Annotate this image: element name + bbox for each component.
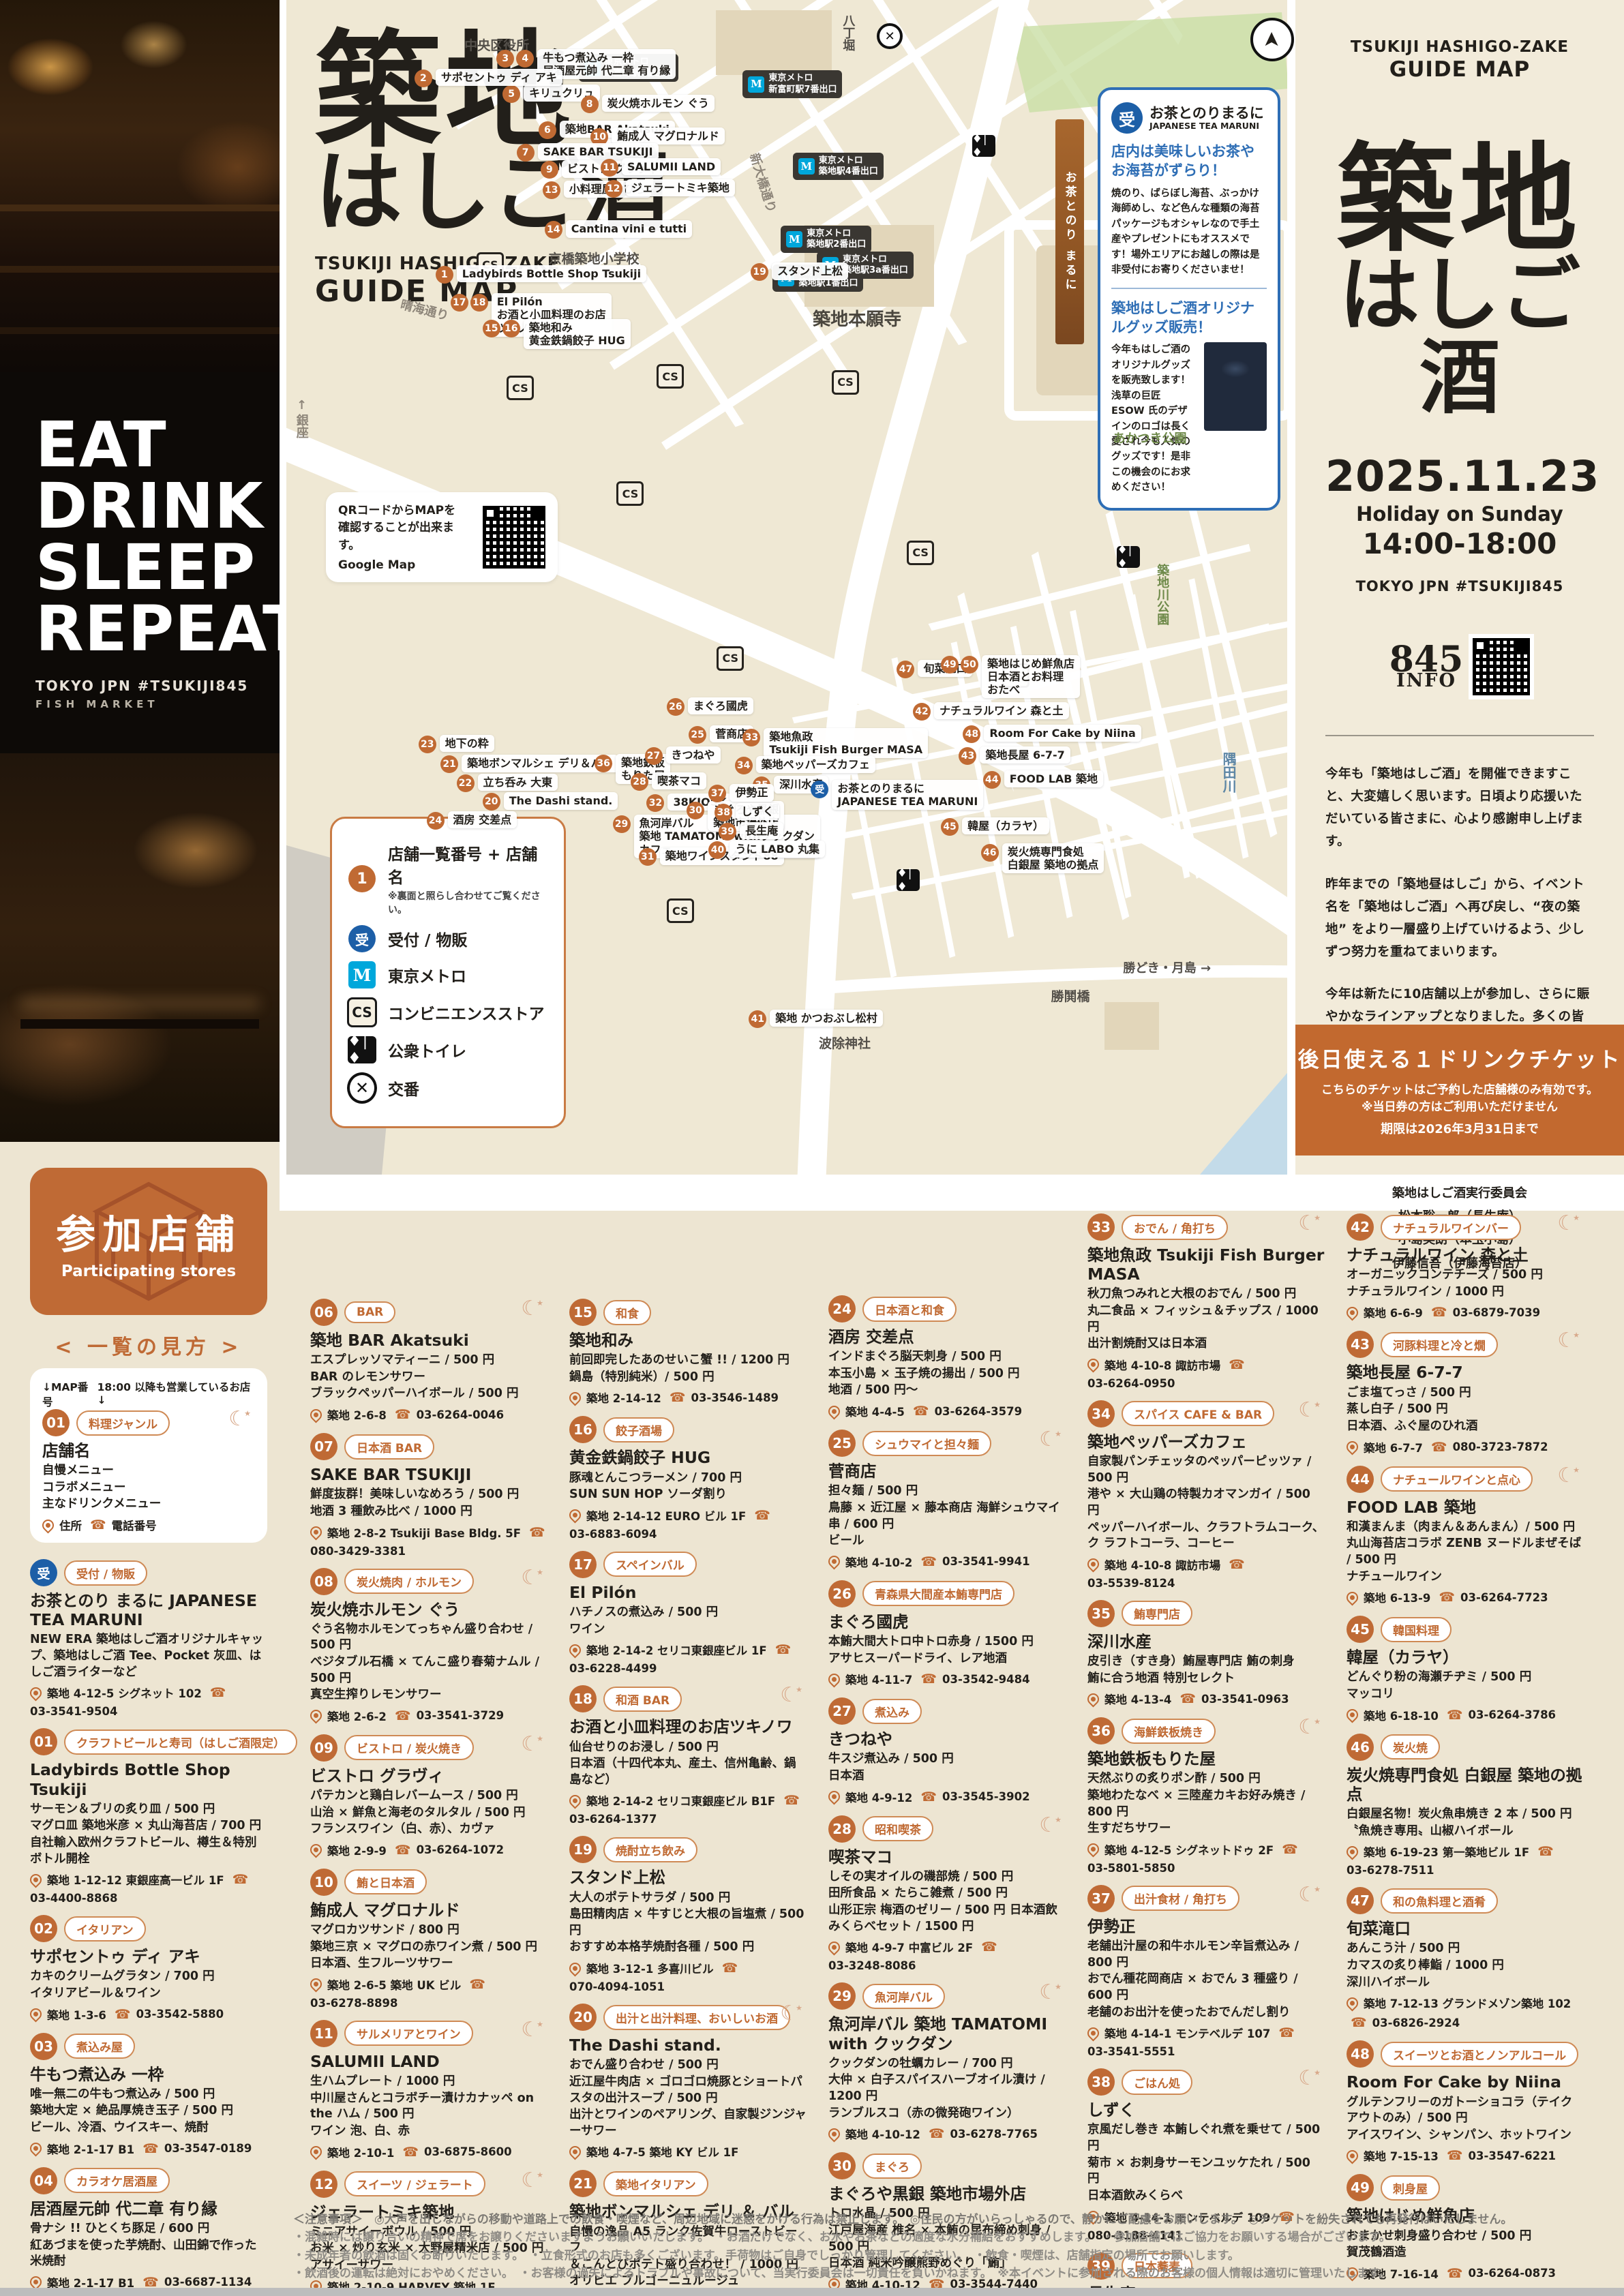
slogan-hashtag: TOKYO JPN #TSUKIJI845	[35, 678, 280, 694]
shop-name: 鮪成人 マグロナルド	[310, 1901, 547, 1920]
convenience-store-icon: CS	[616, 481, 644, 506]
map-shop-label[interactable]: 38しずく	[715, 803, 779, 821]
map-shop-name: 韓屋（カラヤ）	[962, 817, 1049, 834]
map-marker[interactable]: 1	[436, 266, 453, 284]
map-marker[interactable]: 39	[719, 823, 736, 841]
shop-menu-lines: どんぐり粉の海瀬チヂミ / 500 円マッコリ	[1347, 1670, 1584, 1702]
open-late-moon-icon: ☾★	[521, 1734, 546, 1755]
map-marker[interactable]: 2	[415, 70, 432, 87]
phone-icon: ☎	[913, 1404, 929, 1419]
shop-address: 築地 6-13-9	[1364, 1589, 1430, 1605]
open-late-moon-icon: ☾★	[521, 2020, 546, 2040]
map-marker[interactable]: 24	[427, 812, 445, 830]
phone-icon: ☎	[402, 2145, 419, 2160]
map-marker[interactable]: 41	[749, 1010, 766, 1028]
shop-entry: 26 青森県大間産本鮪専門店 ☾★ まぐろ國虎 本鮪大間大トロ中トロ赤身 / 1…	[828, 1580, 1066, 1687]
ticket-line1: こちらのチケットはご予約した店舗様のみ有効です。	[1295, 1080, 1624, 1097]
phone-icon: ☎	[115, 2007, 131, 2022]
shop-name: 韓屋（カラヤ）	[1347, 1648, 1584, 1667]
right-event-logo: 築地 はしご酒	[1325, 143, 1594, 419]
shop-number-badge: 44	[1347, 1466, 1374, 1493]
map-shop-label[interactable]: 33築地魚政Tsukiji Fish Burger MASA	[742, 728, 928, 758]
shop-category: サルメリアとワイン	[344, 2021, 473, 2046]
shop-entry: 10 鮪と日本酒 ☾★ 鮪成人 マグロナルド マグロカツサンド / 800 円築…	[310, 1869, 547, 2010]
map-shop-label[interactable]: 19スタンド上松	[751, 262, 848, 281]
participating-stores-header: 参加店舗 Participating stores	[30, 1168, 267, 1315]
map-marker[interactable]: 27	[645, 747, 663, 765]
map-marker[interactable]: 47	[897, 661, 914, 678]
legend-row: 1店舗一覧番号 + 店舗名※裏面と照らし合わせてご覧ください。	[347, 841, 549, 916]
address-pin-icon	[826, 1789, 842, 1805]
map-shop-label[interactable]: 44FOOD LAB 築地	[983, 770, 1103, 789]
shop-number-badge: 30	[828, 2152, 856, 2179]
sample-phone: 電話番号	[112, 1517, 157, 1533]
shop-name: 酒房 交差点	[828, 1327, 1066, 1346]
map-marker[interactable]: 42	[913, 703, 931, 721]
map-shop-label[interactable]: 4950築地はじめ鮮魚店日本酒とお料理おたべ	[941, 655, 1080, 699]
slogan-line: REPEAT	[35, 599, 280, 660]
map-qr-card: QRコードからMAPを 確認することが出来ます。 Google Map	[326, 492, 558, 582]
phone-icon: ☎	[210, 1685, 226, 1700]
map-marker[interactable]: 43	[959, 747, 976, 765]
map-shop-label[interactable]: 34築地ペッパーズカフェ	[735, 756, 875, 774]
shop-name: お酒と小皿料理のお店ツキノワ	[569, 1717, 807, 1736]
address-pin-icon	[826, 1939, 842, 1955]
phone-icon: ☎	[395, 1843, 411, 1858]
map-shop-label[interactable]: 14Cantina vini e tutti	[545, 220, 692, 239]
map-marker[interactable]: 31	[639, 848, 657, 866]
map-shop-label[interactable]: 40うに LABO 丸集	[708, 841, 825, 859]
map-marker[interactable]: 30	[687, 802, 704, 819]
info-heading-tea: 店内は美味しいお茶やお海苔がずらり！	[1111, 142, 1267, 181]
shop-name: お茶とのり まるに JAPANESE TEA MARUNI	[30, 1591, 267, 1629]
convenience-store-icon: CS	[657, 364, 684, 389]
shop-name: まぐろ國虎	[828, 1612, 1066, 1631]
legend-label: コンビニエンスストア	[388, 1001, 545, 1024]
shop-phone: 03-6264-0046	[417, 1408, 505, 1421]
shop-name: El Pilón	[569, 1583, 807, 1602]
map-shop-label[interactable]: 22立ち呑み 大東	[457, 774, 558, 792]
phone-icon: ☎	[1229, 1557, 1245, 1572]
map-shop-label[interactable]: 21築地ボンマルシェ デリ＆バル	[440, 755, 618, 773]
shop-menu-lines: しその実オイルの磯部焼 / 500 円田所食品 × たらこ雑煮 / 500 円山…	[828, 1869, 1066, 1935]
shop-address: 築地 7-12-13 グランドメゾン築地 102	[1364, 1995, 1571, 2011]
shop-address: 築地 4-9-7 中富ビル 2F	[845, 1939, 973, 1955]
tokyo-metro-icon: M	[786, 231, 802, 247]
shop-number-badge: 12	[310, 2171, 337, 2198]
shop-address: 築地 6-7-7	[1364, 1439, 1423, 1455]
shop-number-badge: 10	[310, 1869, 337, 1896]
shop-category: 餃子酒場	[603, 1417, 674, 1442]
shop-name: ナチュラルワイン 森と土	[1347, 1245, 1584, 1265]
map-marker[interactable]: 28	[631, 773, 648, 791]
map-shop-label[interactable]: 41築地 かつおぶし松村	[749, 1010, 883, 1028]
map-marker[interactable]: 22	[457, 774, 475, 792]
shop-address: 築地 2-8-2 Tsukiji Base Bldg. 5F	[327, 1524, 521, 1541]
map-shop-label[interactable]: 39長生庵	[719, 822, 783, 841]
shop-phone: 03-3541-9504	[30, 1705, 118, 1718]
map-shop-label[interactable]: 43築地長屋 6-7-7	[959, 746, 1070, 765]
shop-category: 出汁食材 / 角打ち	[1122, 1886, 1239, 1911]
map-shop-label[interactable]: 42ナチュラルワイン 森と土	[913, 702, 1069, 721]
shop-category: クラフトビールと寿司（はしご酒限定）	[64, 1729, 297, 1755]
metro-station-label: M東京メトロ築地駅2番出口	[781, 226, 871, 254]
shop-category: 煮込み	[862, 1699, 922, 1724]
info-body-goods: 今年もはしご酒のオリジナルグッズを販売致します！浅草の巨匠 ESOW 氏のデザイ…	[1111, 342, 1197, 496]
goods-photo	[1204, 342, 1267, 431]
map-marker[interactable]: 49	[941, 656, 959, 674]
map-marker[interactable]: 37	[708, 785, 726, 802]
address-pin-icon	[27, 2141, 44, 2157]
map-marker[interactable]: 6	[539, 121, 556, 139]
map-shop-label[interactable]: 1Ladybirds Bottle Shop Tsukiji	[436, 265, 646, 284]
convenience-store-icon: CS	[347, 997, 377, 1027]
phone-icon: ☎	[1351, 2015, 1367, 2030]
shop-phone: 070-4094-1051	[569, 1980, 665, 1993]
map-shop-label[interactable]: 20The Dashi stand.	[483, 792, 618, 811]
map-shop-name: Ladybirds Bottle Shop Tsukiji	[457, 265, 646, 282]
shop-address: 築地 4-7-5 築地 KY ビル 1F	[586, 2143, 738, 2160]
shop-entry: 36 海鮮鉄板焼き ☾★ 築地鉄板もりた屋 天然ぶりの炙りポン酢 / 500 円…	[1087, 1717, 1325, 1875]
shop-name: きつねや	[828, 1729, 1066, 1749]
shop-entry: 11 サルメリアとワイン ☾★ SALUMII LAND 生ハムプレート / 1…	[310, 2020, 547, 2160]
map-shop-label[interactable]: 12ジェラートミキ築地	[605, 179, 735, 198]
map-shop-name: 伊勢正	[730, 784, 773, 801]
shop-category: イタリアン	[64, 1916, 146, 1942]
map-shop-name: ナチュラルワイン 森と土	[934, 702, 1069, 719]
map-marker[interactable]: 12	[605, 180, 622, 198]
shop-menu-lines: 大人のポテトサラダ / 500 円島田精肉店 × 牛すじと大根の旨塩煮 / 50…	[569, 1890, 807, 1957]
google-map-qr-code[interactable]	[483, 506, 545, 569]
shop-category: 韓国料理	[1381, 1617, 1452, 1642]
shop-phone: 03-3541-0963	[1201, 1693, 1289, 1706]
photo-izakaya-counter	[0, 753, 280, 1142]
sample-category: 料理ジャンル	[76, 1410, 170, 1436]
map-marker[interactable]: 5	[502, 85, 520, 103]
participating-stores-title: 参加店舗	[56, 1203, 241, 1260]
info-qr-code[interactable]	[1473, 638, 1530, 695]
map-marker[interactable]: 45	[941, 818, 959, 836]
legend-row: CSコンビニエンスストア	[347, 997, 549, 1027]
map-marker[interactable]: 36	[595, 755, 612, 772]
shop-entry: 34 スパイス CAFE & BAR ☾★ 築地ペッパーズカフェ 自家製パンチェ…	[1087, 1400, 1325, 1590]
shop-menu-lines: NEW ERA 築地はしご酒オリジナルキャップ、築地はしご酒 Tee、Pocke…	[30, 1632, 267, 1680]
reception-name: お茶とのりまるに	[1149, 105, 1264, 121]
open-late-moon-icon: ☾★	[521, 1299, 546, 1319]
map-marker[interactable]: 29	[613, 815, 631, 833]
shop-number-badge: 06	[310, 1299, 337, 1326]
map-shop-label[interactable]: 23地下の粋	[419, 735, 494, 753]
map-marker[interactable]: 38	[715, 804, 732, 821]
legend-label: 受付 / 物販	[388, 927, 467, 950]
map-marker[interactable]: 19	[751, 263, 768, 281]
shop-number-badge: 21	[569, 2170, 597, 2197]
shop-category: カラオケ居酒屋	[64, 2168, 170, 2193]
shop-phone: 03-6687-1134	[164, 2276, 252, 2289]
directory-column-4: 24 日本酒と和食 ☾★ 酒房 交差点 インドまぐろ脳天刺身 / 500 円本玉…	[828, 1295, 1066, 2296]
shop-name: 築地 BAR Akatsuki	[310, 1331, 547, 1350]
map-marker[interactable]: 4	[516, 50, 534, 67]
address-pin-icon	[307, 1976, 324, 1993]
map-marker[interactable]: 46	[981, 844, 999, 862]
shop-phone: 03-3541-9941	[942, 1555, 1030, 1568]
shop-phone: 03-3541-5551	[1087, 2045, 1175, 2058]
shop-category: スイーツ / ジェラート	[344, 2171, 485, 2196]
address-pin-icon	[27, 1685, 44, 1701]
shop-name: Room For Cake by Niina	[1347, 2072, 1584, 2091]
shop-menu-lines: 老舗出汁屋の和牛ホルモン辛旨煮込み / 800 円おでん種花岡商店 × おでん …	[1087, 1939, 1325, 2021]
shop-category: 築地イタリアン	[603, 2171, 708, 2196]
map-marker[interactable]: 20	[483, 793, 500, 811]
shop-entry: 17 スペインバル ☾★ El Pilón ハチノスの煮込み / 500 円ワイ…	[569, 1551, 807, 1675]
shop-number-badge: 42	[1347, 1213, 1374, 1241]
shop-phone: 03-6883-6094	[569, 1528, 657, 1541]
map-marker[interactable]: 40	[708, 841, 726, 859]
shop-menu-lines: 豚魂とんこつラーメン / 700 円SUN SUN HOP ソーダ割り	[569, 1470, 807, 1503]
shop-address: 築地 2-1-17 B1	[47, 2141, 134, 2157]
address-pin-icon	[1085, 1841, 1101, 1858]
address-pin-icon	[567, 1792, 583, 1809]
map-shop-label[interactable]: 8炭火焼ホルモン ぐう	[581, 95, 715, 113]
map-marker[interactable]: 13	[543, 181, 560, 199]
address-pin-icon	[307, 1406, 324, 1423]
map-shop-label[interactable]: 27きつねや	[645, 746, 721, 765]
map-shop-name: きつねや	[666, 746, 721, 764]
map-marker[interactable]: 21	[440, 755, 458, 773]
shop-menu-lines: マグロカツサンド / 800 円築地三京 × マグロの赤ワイン煮 / 500 円…	[310, 1922, 547, 1972]
metro-station-label: M東京メトロ築地駅4番出口	[793, 153, 884, 181]
map-marker[interactable]: 18	[470, 294, 488, 312]
map-marker[interactable]: 8	[581, 95, 599, 113]
address-pin-icon	[826, 1671, 842, 1687]
shop-number-badge: 29	[828, 1982, 856, 2010]
map-marker[interactable]: 受	[811, 781, 828, 798]
map-shop-label[interactable]: 受お茶とのりまるにJAPANESE TEA MARUNI	[811, 780, 983, 810]
open-late-moon-icon: ☾★	[1039, 1982, 1064, 2003]
phone-icon: ☎	[1179, 1691, 1196, 1706]
map-shop-name: 築地長屋 6-7-7	[980, 746, 1070, 764]
legend-sub: ※裏面と照らし合わせてご覧ください。	[388, 889, 549, 916]
shop-entry: 03 煮込み屋 ☾★ 牛もつ煮込み 一枠 唯一無二の牛もつ煮込み / 500 円…	[30, 2033, 267, 2157]
map-landmark-label: あかつき公園	[1113, 429, 1187, 447]
shop-phone: 03-3545-3902	[942, 1790, 1030, 1803]
shop-menu-lines: 京風だし巻き 本鮪しぐれ煮を乗せて / 500 円菊市 × お刺身サーモンユッケ…	[1087, 2122, 1325, 2204]
shop-number-badge: 11	[310, 2020, 337, 2047]
shop-address: 築地 4-10-8 諏訪市場	[1104, 1357, 1220, 1373]
shop-menu-lines: 鮮度抜群！美味しいなめろう / 500 円地酒 3 種飲み比べ / 1000 円	[310, 1487, 547, 1520]
map-shop-label[interactable]: 24酒房 交差点	[427, 811, 517, 830]
open-late-moon-icon: ☾★	[1557, 1213, 1582, 1234]
shop-category: 魚河岸バル	[862, 1984, 945, 2009]
map-marker[interactable]: 50	[961, 656, 978, 674]
map-shop-label[interactable]: 11SALUMII LAND	[601, 158, 721, 177]
map-shop-name: 築地 かつおぶし松村	[770, 1010, 883, 1027]
participating-stores-subtitle: Participating stores	[61, 1263, 236, 1280]
shop-category: 刺身屋	[1381, 2175, 1440, 2201]
map-shop-name: スタンド上松	[772, 262, 848, 280]
shop-menu-lines: おでん盛り合わせ / 500 円近江屋牛肉店 × ゴロゴロ焼豚とショートパスタの…	[569, 2057, 807, 2139]
map-shop-name: 立ち呑み 大東	[478, 774, 558, 791]
map-shop-label[interactable]: 46炭火焼専門食処白銀屋 築地の拠点	[981, 843, 1104, 873]
map-marker[interactable]: 3	[496, 50, 514, 67]
shop-menu-lines: インドまぐろ脳天刺身 / 500 円本玉小島 × 玉子焼の揚出 / 500 円地…	[828, 1349, 1066, 1399]
photo-bar-interior	[0, 0, 280, 372]
open-late-moon-icon: ☾★	[1298, 1400, 1323, 1421]
map-marker[interactable]: 11	[601, 159, 618, 177]
map-marker[interactable]: 33	[742, 729, 760, 746]
open-late-moon-icon: ☾★	[1298, 2068, 1323, 2089]
address-pin-icon	[826, 1403, 842, 1419]
photo-strip: EAT DRINK SLEEP REPEAT TOKYO JPN #TSUKIJ…	[0, 0, 280, 1142]
map-marker[interactable]: 16	[502, 320, 520, 337]
shop-phone: 03-3547-6221	[1469, 2149, 1557, 2162]
shop-name: 炭火焼ホルモン ぐう	[310, 1600, 547, 1619]
shop-category: スパイス CAFE & BAR	[1122, 1401, 1274, 1426]
shop-menu-lines: オーガニックコンテチーズ / 500 円ナチュラルワイン / 1000 円	[1347, 1267, 1584, 1300]
address-pin-icon	[1344, 1995, 1360, 2011]
phone-icon: ☎	[90, 1517, 106, 1532]
address-pin-icon	[567, 1389, 583, 1406]
shop-number-badge: 27	[828, 1697, 856, 1725]
shop-number-badge: 20	[569, 2004, 597, 2031]
shop-category: おでん / 角打ち	[1122, 1215, 1228, 1240]
compass-north-icon: ➤	[1250, 18, 1294, 61]
phone-icon: ☎	[1447, 1708, 1463, 1723]
phone-icon: ☎	[395, 1407, 411, 1422]
shop-menu-lines: 自家製パンチェッタのペッパーピッツァ / 500 円港や × 大山鶏の特製カオマ…	[1087, 1454, 1325, 1552]
shop-entry: 35 鮪専門店 ☾★ 深川水産 皮引き（すき身）鮪屋専門店 鮪の刺身鮪に合う地酒…	[1087, 1600, 1325, 1707]
shop-phone: 080-3429-3381	[310, 1545, 406, 1558]
shop-name: 築地ペッパーズカフェ	[1087, 1432, 1325, 1451]
shop-menu-lines: サーモン＆ブリの炙り皿 / 500 円マグロ皿 築地米彦 × 丸山海苔店 / 7…	[30, 1802, 267, 1868]
map-shop-label[interactable]: 48Room For Cake by Niina	[963, 725, 1141, 743]
shop-entry: 48 スイーツとお酒とノンアルコール ☾★ Room For Cake by N…	[1347, 2040, 1584, 2164]
shop-category: 和の魚料理と酒肴	[1381, 1888, 1498, 1914]
tokyo-metro-icon: M	[748, 76, 764, 93]
map-shop-name: 築地和み黄金鉄鍋餃子 HUG	[524, 319, 631, 349]
shop-name: 炭火焼専門食処 白銀屋 築地の拠点	[1347, 1766, 1584, 1804]
shop-entry: 28 昭和喫茶 ☾★ 喫茶マコ しその実オイルの磯部焼 / 500 円田所食品 …	[828, 1815, 1066, 1973]
map-shop-label[interactable]: 37伊勢正	[708, 784, 773, 802]
shop-name: 牛もつ煮込み 一枠	[30, 2065, 267, 2084]
sample-name: 店舗名	[42, 1441, 255, 1460]
shop-name: サポセントゥ ディ アキ	[30, 1947, 267, 1966]
shop-name: 魚河岸バル 築地 TAMATOMI with クックダン	[828, 2014, 1066, 2053]
shop-address: 築地 4-14-1 モンテベルデ 107	[1104, 2025, 1270, 2041]
address-pin-icon	[1085, 1691, 1101, 1707]
shop-entry: 27 煮込み ☾★ きつねや 牛スジ煮込み / 500 円日本酒 築地 4-9-…	[828, 1697, 1066, 1804]
shop-name: 居酒屋元帥 代二章 有り縁	[30, 2199, 267, 2218]
shop-category: 日本酒と和食	[862, 1297, 957, 1322]
shop-number-badge: 38	[1087, 2068, 1115, 2096]
shop-menu-lines: 本鮪大間大トロ中トロ赤身 / 1500 円アサヒスーパードライ、レア地酒	[828, 1634, 1066, 1667]
shop-address: 築地 2-14-12 EURO ビル 1F	[586, 1507, 746, 1524]
shop-menu-lines: パテカンと鶏白レバームース / 500 円山治 × 鮮魚と海老のタルタル / 5…	[310, 1788, 547, 1838]
map-shop-label[interactable]: 1516築地和み黄金鉄鍋餃子 HUG	[483, 319, 631, 349]
map-shop-label[interactable]: 28喫茶マコ	[631, 772, 706, 791]
shop-menu-lines: 担々麺 / 500 円鳥藤 × 近江屋 × 藤本商店 海鮮シュウマイ串 / 60…	[828, 1483, 1066, 1550]
shop-number-icon: 1	[348, 865, 376, 892]
shop-menu-lines: ハチノスの煮込み / 500 円ワイン	[569, 1605, 807, 1637]
map-shop-label[interactable]: 26まぐろ國虎	[667, 697, 753, 716]
map-marker[interactable]: 32	[646, 794, 664, 812]
public-toilet-icon: ♦|♦	[972, 135, 995, 157]
map-marker[interactable]: 7	[517, 144, 535, 162]
address-pin-icon	[567, 1642, 583, 1658]
map-marker[interactable]: 14	[545, 221, 562, 239]
shop-number-badge: 18	[569, 1685, 597, 1712]
legend-row: ♦|♦公衆トイレ	[347, 1036, 549, 1063]
sample-menu-lines: 自慢メニューコラボメニュー主なドリンクメニュー	[42, 1463, 255, 1513]
public-toilet-icon: ♦|♦	[1117, 546, 1140, 568]
legend-label: 店舗一覧番号 + 店舗名	[388, 841, 549, 888]
shop-phone: 03-4400-8868	[30, 1892, 118, 1905]
map-marker[interactable]: 34	[735, 757, 753, 774]
map-marker[interactable]: 26	[667, 698, 685, 716]
shop-entry: 16 餃子酒場 ☾★ 黄金鉄鍋餃子 HUG 豚魂とんこつラーメン / 700 円…	[569, 1416, 807, 1540]
map-marker[interactable]: 44	[983, 771, 1001, 789]
open-late-moon-icon: ☾★	[780, 1685, 805, 1706]
map-marker[interactable]: 17	[451, 294, 468, 312]
howto-sample-entry: 01 料理ジャンル ☾★ 店舗名 自慢メニューコラボメニュー主なドリンクメニュー…	[42, 1409, 255, 1533]
shop-address: 築地 7-15-13	[1364, 2147, 1439, 2164]
map-marker[interactable]: 48	[963, 725, 980, 743]
shop-category: BAR	[344, 1301, 395, 1323]
event-date: 2025.11.23	[1325, 451, 1594, 501]
slogan-line: SLEEP	[35, 537, 280, 599]
phone-icon: ☎	[722, 1961, 738, 1976]
map-panel: 築地 はしご酒 TSUKIJI HASHIGO-ZAKE GUIDE MAP Q…	[280, 0, 1295, 1175]
open-late-moon-icon: ☾★	[1298, 1885, 1323, 1905]
open-late-moon-icon: ☾★	[521, 2171, 546, 2191]
slogan-line: DRINK	[35, 476, 280, 537]
map-landmark-label: 勝どき・月島 →	[1123, 958, 1211, 976]
shop-entry: 08 炭火焼肉 / ホルモン ☾★ 炭火焼ホルモン ぐう ぐう名物ホルモンてっち…	[310, 1568, 547, 1724]
drink-ticket-banner: 後日使える１ドリンクチケット こちらのチケットはご予約した店舗様のみ有効です。 …	[1295, 1025, 1624, 1155]
map-marker[interactable]: 25	[689, 726, 706, 744]
map-marker[interactable]: 9	[541, 161, 558, 179]
right-panel: TSUKIJI HASHIGO-ZAKE GUIDE MAP 築地 はしご酒 2…	[1295, 0, 1624, 1175]
map-shop-label[interactable]: 2サポセントゥ ディ アキ	[415, 69, 562, 87]
open-late-moon-icon: ☾★	[1039, 1815, 1064, 1836]
map-marker[interactable]: 15	[483, 320, 500, 337]
directory-column-3: 15 和食 ☾★ 築地和み 前回即完したあのせいこ蟹 !! / 1200 円鍋島…	[569, 1299, 807, 2296]
howto-title: < 一覧の見方 >	[30, 1330, 267, 1360]
shop-category: スイーツとお酒とノンアルコール	[1381, 2042, 1578, 2067]
shop-category: ナチュールワインと点心	[1381, 1466, 1533, 1492]
shop-number-badge: 43	[1347, 1331, 1374, 1358]
map-marker[interactable]: 23	[419, 736, 436, 753]
google-map-label: Google Map	[338, 558, 472, 572]
shop-address: 築地 2-14-2 セリコ東銀座ビル 1F	[586, 1642, 767, 1658]
shop-entry: 46 炭火焼 ☾★ 炭火焼専門食処 白銀屋 築地の拠点 白銀屋名物！炭火魚串焼き…	[1347, 1734, 1584, 1877]
reception-info-box: 受 お茶とのりまるに JAPANESE TEA MARUNI 店内は美味しいお茶…	[1098, 87, 1280, 511]
map-landmark-label: 築地本願寺	[813, 305, 901, 331]
shop-category: まぐろ	[862, 2154, 922, 2179]
shop-address: 築地 6-6-9	[1364, 1304, 1423, 1320]
shop-category: 煮込み屋	[64, 2034, 135, 2059]
open-late-moon-icon: ☾★	[780, 2004, 805, 2024]
shop-phone: 03-6264-1377	[569, 1813, 657, 1826]
map-shop-name: ジェラートミキ築地	[626, 179, 735, 196]
shop-category: 鮪と日本酒	[344, 1869, 427, 1894]
shop-menu-lines: あんこう汁 / 500 円カマスの炙り棒鮨 / 1000 円深川ハイボール	[1347, 1941, 1584, 1991]
shop-address: 築地 4-11-7	[845, 1671, 912, 1687]
shop-number-badge: 16	[569, 1416, 597, 1443]
map-shop-label[interactable]: 45韓屋（カラヤ）	[941, 817, 1049, 836]
address-pin-icon	[567, 1507, 583, 1524]
shop-phone: 03-3547-0189	[164, 2142, 252, 2155]
